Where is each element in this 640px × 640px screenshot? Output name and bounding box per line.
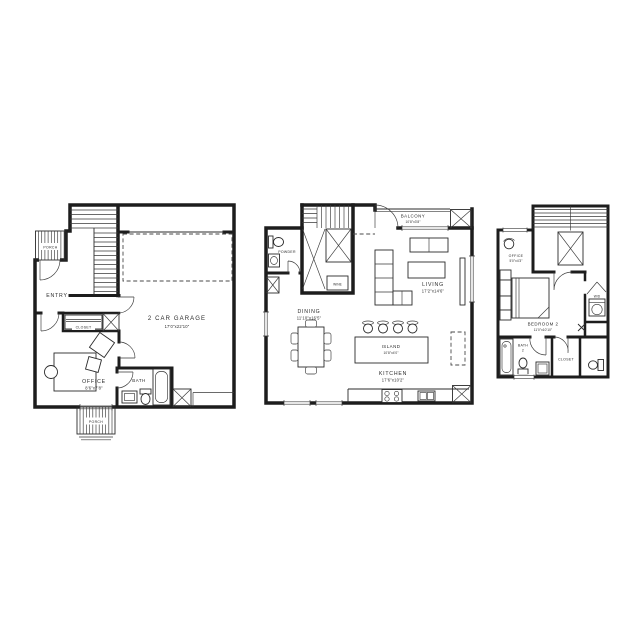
second-floor-drawing: BALCONY 10'8"x3'8" POWDER xyxy=(260,192,475,414)
bath-label: BATH xyxy=(132,378,145,383)
balcony-dims: 10'8"x3'8" xyxy=(406,220,421,224)
stairs xyxy=(70,210,118,295)
first-floor-plan: PORCH CLOSET xyxy=(30,198,245,453)
corner-toilet xyxy=(589,360,604,371)
living-furniture xyxy=(375,238,465,305)
office-nook: OFFICE 5'0"x4'3" xyxy=(503,227,527,263)
office-dims: 8'6"x7'8" xyxy=(85,386,103,391)
dining-dims: 11'10"x16'5" xyxy=(297,316,322,321)
bath-fixtures xyxy=(122,369,170,405)
garage-dims: 17'0"x22'10" xyxy=(165,324,190,329)
bedroom2-dims: 11'0"x10'10" xyxy=(534,328,552,332)
living-dims: 17'2"x14'6" xyxy=(422,289,445,294)
island-label: ISLAND xyxy=(382,344,401,349)
office-label: OFFICE xyxy=(82,379,106,385)
porch-bottom-label: PORCH xyxy=(89,420,103,424)
third-floor-drawing: OFFICE 5'0"x4'3" BEDROOM 2 11'0"x10'10" … xyxy=(492,192,612,394)
closet-label: CLOSET xyxy=(76,326,92,330)
closet3-label: CLOSET xyxy=(558,358,574,362)
dining-furniture xyxy=(291,320,331,374)
office3-dims: 5'0"x4'3" xyxy=(509,259,522,263)
powder-label: POWDER xyxy=(278,250,296,254)
bath2-number: 2 xyxy=(522,349,524,353)
bedroom-furniture: BEDROOM 2 11'0"x10'10" xyxy=(500,270,558,332)
walls xyxy=(266,205,472,403)
porch-bottom: PORCH xyxy=(77,407,115,440)
left-shaft-box xyxy=(267,277,280,293)
wd-label: W/D xyxy=(594,295,601,299)
stairs xyxy=(533,206,608,290)
closet: CLOSET xyxy=(65,315,102,330)
wine-label: WINE xyxy=(333,283,342,287)
island-and-stools xyxy=(355,321,428,363)
living-label: LIVING xyxy=(422,282,444,288)
porch-top: PORCH xyxy=(36,231,67,260)
dining-label: DINING xyxy=(298,309,321,315)
third-floor-plan: OFFICE 5'0"x4'3" BEDROOM 2 11'0"x10'10" … xyxy=(492,192,612,394)
powder-room: POWDER xyxy=(269,236,301,273)
balcony-label: BALCONY xyxy=(401,214,425,219)
garage-shaft-box xyxy=(173,389,234,407)
entry-label: ENTRY xyxy=(46,293,68,299)
shaft-box xyxy=(103,314,119,332)
office3-label: OFFICE xyxy=(509,254,524,258)
island-dims: 10'8"x4'0" xyxy=(384,351,399,355)
floor-plan-sheet: PORCH CLOSET xyxy=(0,0,640,640)
kitchen-dims: 17'6"x10'2" xyxy=(382,378,405,383)
kitchen-label: KITCHEN xyxy=(379,371,407,377)
garage-overhead-dashes xyxy=(123,234,232,281)
garage-label: 2 CAR GARAGE xyxy=(148,316,206,322)
bath2: BATH 2 xyxy=(500,337,549,380)
balcony: BALCONY 10'8"x3'8" xyxy=(375,205,472,228)
bath2-label: BATH xyxy=(518,344,528,348)
kitchen-shaft-box xyxy=(453,386,472,403)
closet3: CLOSET xyxy=(554,337,574,362)
stairs: WINE xyxy=(302,205,375,290)
bedroom2-label: BEDROOM 2 xyxy=(528,322,559,327)
first-floor-drawing: PORCH CLOSET xyxy=(30,198,245,453)
second-floor-plan: BALCONY 10'8"x3'8" POWDER xyxy=(260,192,475,414)
laundry-closet: W/D xyxy=(578,282,606,331)
porch-top-label: PORCH xyxy=(43,246,57,250)
